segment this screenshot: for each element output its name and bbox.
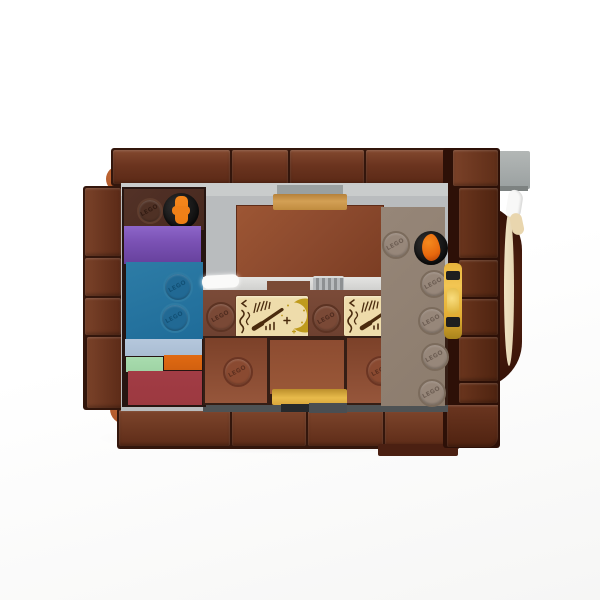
orange-lever-nub xyxy=(172,206,190,215)
left-border-brick xyxy=(85,188,121,256)
left-border-brick xyxy=(85,298,121,335)
white-wand-piece xyxy=(202,274,240,289)
purple-brick xyxy=(124,226,201,264)
right-border-brick xyxy=(459,299,498,335)
cream-trim-arc xyxy=(504,212,514,366)
stud: LEGO xyxy=(137,198,163,224)
wand-print-tile xyxy=(236,296,308,337)
right-border-brick xyxy=(459,188,498,258)
bottom-brown-tile-center xyxy=(270,340,344,394)
stud: LEGO xyxy=(421,343,449,371)
stud: LEGO xyxy=(382,231,410,259)
bottom-gray-piece xyxy=(309,403,347,413)
stud: LEGO xyxy=(223,357,253,387)
sparkle-icon xyxy=(284,318,290,324)
stud: LEGO xyxy=(418,307,446,335)
right-border-brick-bottom xyxy=(447,405,498,447)
right-border-brick xyxy=(459,337,498,381)
stud: LEGO xyxy=(163,272,193,302)
left-border-brick xyxy=(85,258,121,296)
gold-latch-clip-top xyxy=(446,271,460,280)
lego-trunk-top-view-photo: LEGO LEGO LEGO LEGO xyxy=(0,0,600,600)
bottom-black-piece xyxy=(281,404,309,412)
left-border-brick xyxy=(87,337,123,408)
rust-lid-tile xyxy=(237,206,383,277)
sand-blue-plate xyxy=(125,339,202,356)
top-border-brick xyxy=(113,150,230,184)
right-border-brick xyxy=(459,383,498,403)
orange-plate xyxy=(164,355,202,370)
stud: LEGO xyxy=(206,302,236,332)
top-border-brick xyxy=(232,150,288,184)
star-icon xyxy=(292,330,296,334)
top-border-brick xyxy=(290,150,364,184)
bottom-border-brick xyxy=(308,410,383,446)
bottom-border-brick xyxy=(232,410,306,446)
top-handle-tan-bar xyxy=(273,194,347,210)
right-border-brick xyxy=(453,150,498,186)
stud: LEGO xyxy=(160,303,190,333)
dark-red-brick xyxy=(128,371,202,405)
bottom-border-brick xyxy=(119,410,230,446)
gold-latch-knob xyxy=(447,288,459,314)
green-plate xyxy=(126,357,163,372)
gold-latch-clip-bottom xyxy=(446,317,460,327)
stud: LEGO xyxy=(312,304,341,333)
right-border-brick xyxy=(459,260,498,297)
stud: LEGO xyxy=(418,379,446,407)
hinge-gray-piece xyxy=(497,151,530,189)
crescent-moon-icon xyxy=(294,299,308,333)
